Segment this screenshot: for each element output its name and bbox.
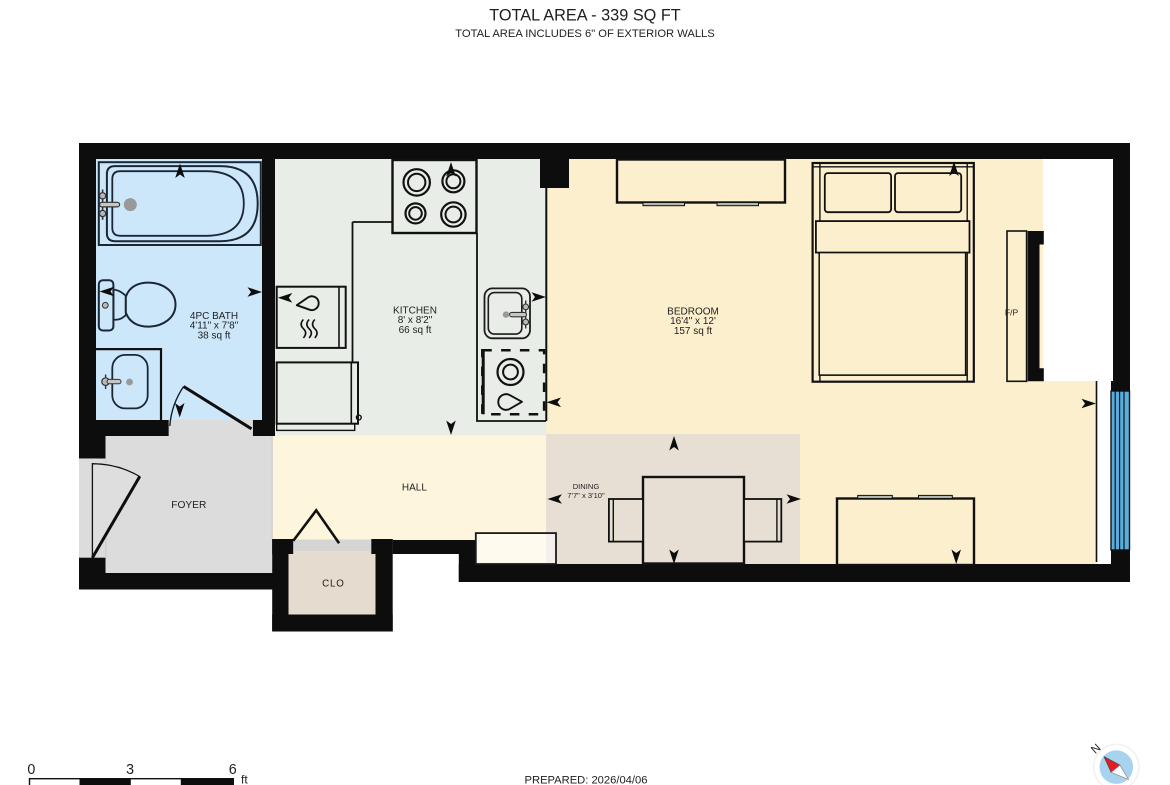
svg-text:0: 0 bbox=[27, 762, 35, 778]
svg-text:TOTAL AREA - 339 SQ FT: TOTAL AREA - 339 SQ FT bbox=[489, 7, 681, 25]
svg-text:38 sq ft: 38 sq ft bbox=[198, 330, 231, 341]
svg-text:7'7" x 3'10": 7'7" x 3'10" bbox=[567, 491, 605, 500]
svg-text:DINING: DINING bbox=[573, 482, 600, 491]
svg-text:HALL: HALL bbox=[402, 483, 427, 494]
svg-text:ft: ft bbox=[241, 773, 248, 785]
svg-text:3: 3 bbox=[126, 762, 134, 778]
svg-text:CLO: CLO bbox=[322, 579, 345, 590]
svg-text:157 sq ft: 157 sq ft bbox=[674, 326, 713, 337]
svg-text:PREPARED: 2026/04/06: PREPARED: 2026/04/06 bbox=[525, 775, 648, 785]
svg-text:FOYER: FOYER bbox=[171, 500, 206, 511]
svg-text:66 sq ft: 66 sq ft bbox=[399, 325, 432, 336]
svg-text:6: 6 bbox=[229, 762, 237, 778]
svg-text:F/P: F/P bbox=[1005, 308, 1019, 318]
svg-text:TOTAL AREA INCLUDES 6" OF EXTE: TOTAL AREA INCLUDES 6" OF EXTERIOR WALLS bbox=[455, 28, 714, 40]
